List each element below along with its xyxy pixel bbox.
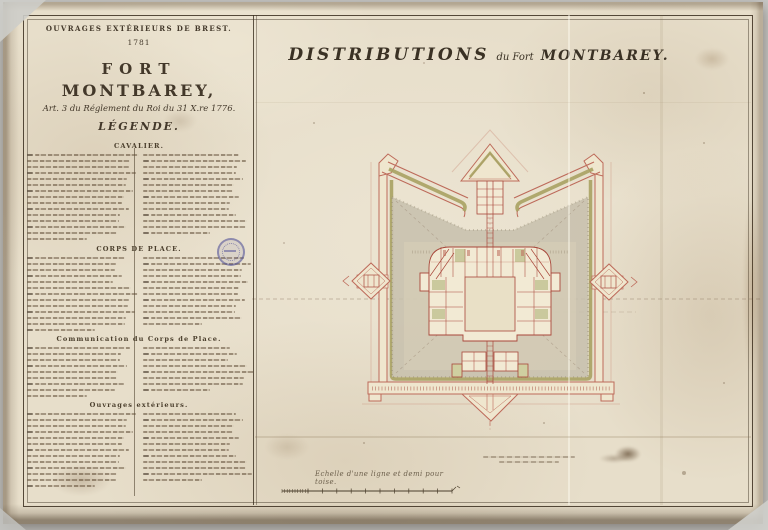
handwriting-line [143, 230, 252, 236]
map-title: DISTRIBUTIONS du Fort MONTBAREY. [253, 45, 705, 65]
legend-heading: LÉGENDE. [25, 120, 253, 133]
handwriting-line [483, 456, 575, 458]
handwriting-line [27, 327, 136, 332]
handwriting-line [27, 483, 136, 489]
legend-section-heading: Communication du Corps de Place. [25, 335, 253, 343]
legend-section-heading: Ouvrages extérieurs. [25, 401, 253, 409]
scale-caption: Echelle d'une ligne et demi pour toise. [315, 470, 465, 486]
legend-column-right [143, 152, 252, 242]
legend-section-heading: CAVALIER. [25, 142, 253, 150]
legend-column-left [27, 411, 136, 489]
legend-column-right [143, 255, 252, 332]
handwriting-line [143, 477, 252, 483]
legend-column-left [27, 255, 136, 332]
legend-column-right [143, 345, 252, 398]
handwriting-line [27, 393, 136, 398]
map-sheet: OUVRAGES EXTÉRIEURS DE BREST. 1781 FORT … [3, 2, 763, 524]
handwriting-line [27, 236, 136, 242]
handwritten-note [479, 453, 579, 463]
map-title-middle: du Fort [496, 52, 533, 63]
legend-section: Ouvrages extérieurs. [25, 398, 253, 494]
legend-column-left [27, 345, 136, 398]
legend-panel: OUVRAGES EXTÉRIEURS DE BREST. 1781 FORT … [25, 15, 253, 505]
legend-header: OUVRAGES EXTÉRIEURS DE BREST. 1781 FORT … [25, 15, 253, 133]
regulation-reference: Art. 3 du Réglement du Roi du 31 X.re 17… [25, 104, 253, 114]
series-title: OUVRAGES EXTÉRIEURS DE BREST. [25, 24, 253, 33]
legend-sections: CAVALIER.CORPS DE PLACE.Communication du… [25, 139, 253, 494]
fort-title-line2: MONTBAREY, [25, 81, 253, 100]
legend-section: CAVALIER. [25, 139, 253, 242]
collection-stamp [217, 238, 245, 266]
legend-column-right [143, 411, 252, 489]
legend-section: Communication du Corps de Place. [25, 332, 253, 398]
handwriting-line [143, 387, 252, 393]
handwriting-line [499, 461, 559, 463]
fort-title-line1: FORT [25, 60, 253, 78]
map-panel: DISTRIBUTIONS du Fort MONTBAREY. Echelle… [253, 15, 751, 505]
legend-column-left [27, 152, 136, 242]
map-title-main: DISTRIBUTIONS [288, 45, 489, 65]
stamp-inner-ring [222, 243, 240, 261]
handwriting-line [143, 321, 252, 327]
photo-background: OUVRAGES EXTÉRIEURS DE BREST. 1781 FORT … [0, 0, 768, 530]
stamp-text-bar [224, 250, 236, 252]
sheet-year: 1781 [25, 38, 253, 47]
map-title-end: MONTBAREY. [541, 48, 670, 64]
